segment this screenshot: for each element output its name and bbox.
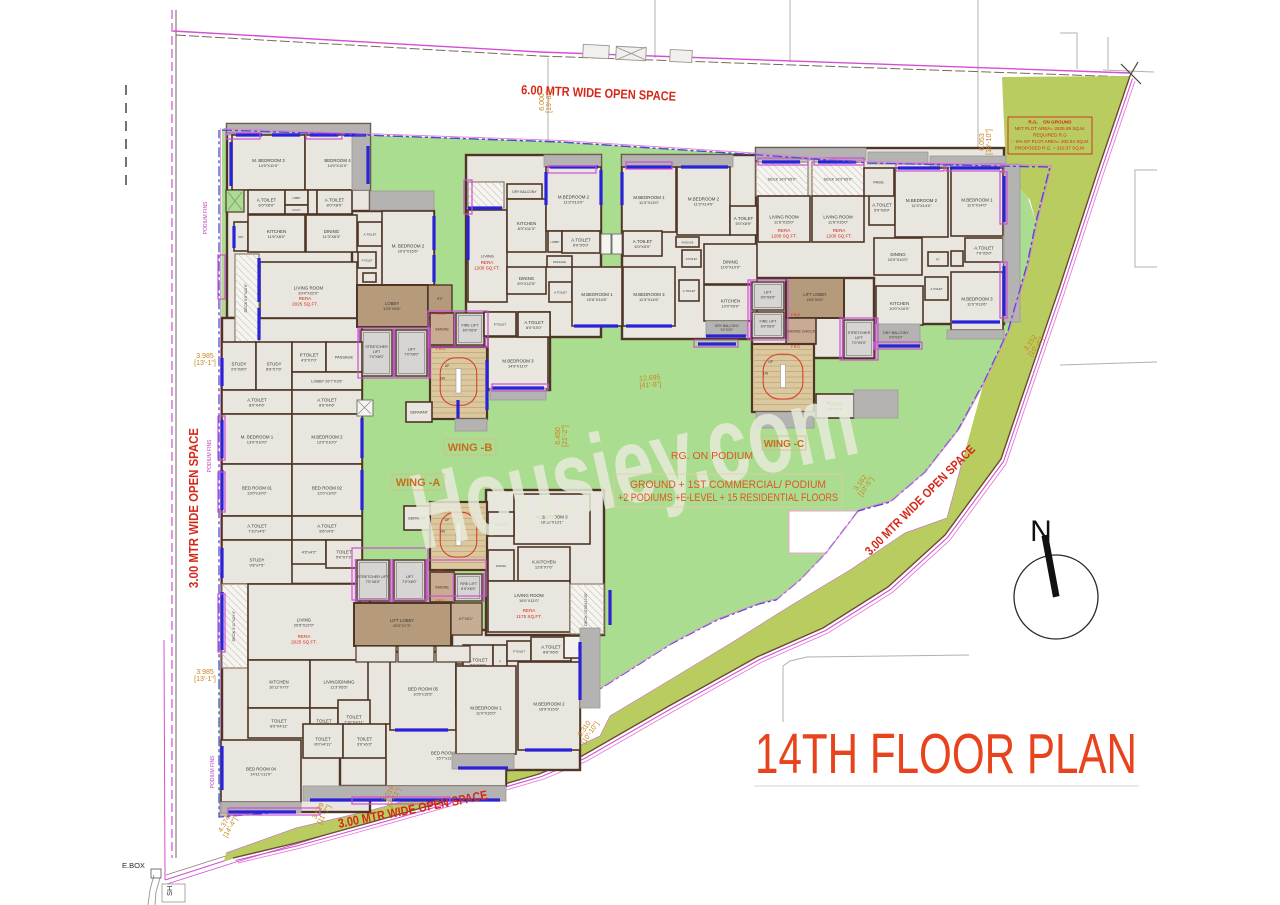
svg-text:14TH FLOOR PLAN: 14TH FLOOR PLAN: [755, 722, 1137, 786]
svg-text:14'9"X11'0": 14'9"X11'0": [508, 363, 529, 368]
svg-text:6'0"X5'0": 6'0"X5'0": [635, 244, 652, 249]
svg-text:8'6"X4'6": 8'6"X4'6": [319, 402, 336, 407]
svg-text:8'6"x4'5": 8'6"x4'5": [319, 528, 335, 533]
svg-text:DRY BALCONY: DRY BALCONY: [883, 331, 909, 335]
svg-text:WING -C: WING -C: [764, 439, 805, 450]
svg-text:DECK 10'9"X5'0": DECK 10'9"X5'0": [824, 178, 853, 182]
svg-text:5'0"X8'9": 5'0"X8'9": [736, 221, 753, 226]
svg-text:3.985: 3.985: [196, 669, 214, 676]
svg-text:8'8"X6'6": 8'8"X6'6": [543, 649, 560, 654]
svg-text:20'0"X7'3": 20'0"X7'3": [393, 623, 412, 628]
svg-text:UP: UP: [445, 364, 450, 368]
svg-text:4'3"x4'2": 4'3"x4'2": [302, 550, 317, 555]
svg-text:FIRE LIFT: FIRE LIFT: [461, 324, 479, 328]
svg-text:DN: DN: [440, 376, 445, 380]
svg-text:STRETCHER: STRETCHER: [848, 331, 871, 335]
svg-text:14'11"x11'0": 14'11"x11'0": [250, 771, 272, 776]
svg-text:LOBBY 26'7"X3'5": LOBBY 26'7"X3'5": [311, 379, 343, 384]
svg-text:8'0"X4'6": 8'0"X4'6": [249, 402, 266, 407]
svg-text:3'0"x6'3": 3'0"x6'3": [357, 741, 373, 746]
svg-text:LIVING: LIVING: [481, 254, 494, 259]
svg-text:1200 SQ.FT.: 1200 SQ.FT.: [826, 234, 852, 239]
svg-text:3.985: 3.985: [196, 353, 214, 360]
svg-text:2025 SQ.FT.: 2025 SQ.FT.: [292, 302, 318, 307]
svg-text:GROUND + 1ST COMMERCIAL/ PODIU: GROUND + 1ST COMMERCIAL/ PODIUM: [630, 479, 826, 491]
svg-text:DECK 4'11"X21'4": DECK 4'11"X21'4": [232, 610, 236, 641]
svg-text:[13'-1"]: [13'-1"]: [194, 676, 216, 683]
svg-text:PASSAGE: PASSAGE: [335, 355, 354, 360]
svg-text:RERA: RERA: [833, 228, 847, 233]
svg-text:8'0"X8'0": 8'0"X8'0": [327, 202, 344, 207]
svg-text:1200 SQ.FT.: 1200 SQ.FT.: [474, 266, 500, 271]
svg-text:7'0"X8'0": 7'0"X8'0": [369, 355, 384, 359]
svg-text:11'3"X6'5": 11'3"X6'5": [330, 684, 348, 689]
svg-text:20'5"X22'0": 20'5"X22'0": [294, 622, 315, 627]
svg-text:9'0"X3'0": 9'0"X3'0": [889, 336, 903, 340]
svg-text:UP: UP: [768, 360, 773, 364]
svg-text:7'0"X9'0": 7'0"X9'0": [852, 341, 867, 345]
svg-text:STRETCHER LIFT: STRETCHER LIFT: [357, 575, 389, 579]
svg-text:9'8"x7'5": 9'8"x7'5": [249, 562, 265, 567]
svg-text:SMOKE CHECK: SMOKE CHECK: [787, 329, 816, 334]
svg-text:P.TOILET: P.TOILET: [513, 650, 525, 654]
svg-text:8'9"X12'5": 8'9"X12'5": [517, 281, 536, 286]
svg-text:7'10"x4'5": 7'10"x4'5": [248, 528, 266, 533]
svg-text:P.T.: P.T.: [936, 259, 940, 262]
svg-text:RERA: RERA: [299, 296, 313, 301]
svg-text:P.TOILET: P.TOILET: [362, 260, 373, 263]
svg-text:LIFT: LIFT: [373, 350, 381, 354]
svg-text:14'9"X11'0": 14'9"X11'0": [258, 163, 279, 168]
svg-text:10'3"X15'6": 10'3"X15'6": [398, 248, 419, 253]
svg-text:10'0"X10'0": 10'0"X10'0": [888, 257, 909, 262]
svg-text:FIRE LIFT: FIRE LIFT: [759, 320, 777, 324]
svg-text:16'6"X6'0": 16'6"X6'0": [806, 298, 824, 302]
svg-text:12'0"X10'0": 12'0"X10'0": [317, 439, 338, 444]
svg-text:6'0"X5'0": 6'0"X5'0": [573, 242, 590, 247]
svg-text:11'3"X13'0": 11'3"X13'0": [563, 199, 584, 204]
svg-text:NET PLOT AREA= 2535.89 SQ.M.: NET PLOT AREA= 2535.89 SQ.M.: [1015, 126, 1086, 131]
svg-text:R.G. ON GROUND: R.G. ON GROUND: [1028, 120, 1072, 125]
svg-text:SH: SH: [165, 886, 174, 896]
svg-text:7'0"X8'0": 7'0"X8'0": [404, 352, 419, 356]
svg-text:FIRE LIFT: FIRE LIFT: [460, 582, 478, 586]
svg-text:RG. ON PODIUM: RG. ON PODIUM: [671, 450, 753, 462]
svg-text:REQUIRED R.G: REQUIRED R.G: [1033, 133, 1067, 138]
svg-text:10'11"X7'0": 10'11"X7'0": [269, 684, 290, 689]
svg-text:11'6"X15'0": 11'6"X15'0": [828, 219, 849, 224]
svg-text:LOBBY: LOBBY: [292, 197, 301, 200]
svg-text:11'0"X13'6": 11'0"X13'6": [967, 301, 988, 306]
svg-text:UTILITY: UTILITY: [292, 210, 301, 212]
svg-text:A.TOILET: A.TOILET: [931, 287, 943, 291]
svg-text:PROPOSED R.G. = 210.37 SQ.M.: PROPOSED R.G. = 210.37 SQ.M.: [1015, 146, 1085, 151]
svg-text:RERA: RERA: [481, 260, 495, 265]
svg-text:6'0"X8'0": 6'0"X8'0": [259, 202, 276, 207]
svg-text:F.R.D.: F.R.D.: [436, 347, 446, 351]
svg-text:10'0"X9'0": 10'0"X9'0": [721, 303, 740, 308]
svg-text:4'3"X7'0": 4'3"X7'0": [301, 357, 318, 362]
svg-text:[19'-10"]: [19'-10"]: [986, 129, 993, 155]
svg-text:3.00 MTR WIDE OPEN SPACE: 3.00 MTR WIDE OPEN SPACE: [186, 428, 201, 588]
svg-text:7'0"X8'0": 7'0"X8'0": [366, 580, 381, 584]
svg-text:7'0"X8'0": 7'0"X8'0": [402, 580, 417, 584]
svg-text:RERA: RERA: [523, 608, 537, 613]
svg-text:PODIUM FINS: PODIUM FINS: [203, 201, 209, 234]
svg-text:6.000: 6.000: [539, 93, 546, 111]
svg-text:PODIUM FINS: PODIUM FINS: [207, 439, 213, 472]
svg-text:13'0"X10'0": 13'0"X10'0": [247, 439, 268, 444]
svg-text:F.R.D.: F.R.D.: [436, 599, 446, 603]
svg-text:2'0"X8'0": 2'0"X8'0": [231, 366, 248, 371]
svg-text:PASSAGE: PASSAGE: [682, 242, 694, 245]
svg-text:DINING: DINING: [496, 564, 507, 568]
svg-text:LIFT: LIFT: [855, 336, 863, 340]
svg-text:DECK 5'0"X22'0": DECK 5'0"X22'0": [244, 283, 248, 312]
svg-text:8'0"x4'11": 8'0"x4'11": [314, 741, 332, 746]
svg-text:PODIUM FINS: PODIUM FINS: [210, 755, 216, 788]
svg-text:11'3"X14'6": 11'3"X14'6": [639, 297, 660, 302]
svg-text:2025 SQ.FT.: 2025 SQ.FT.: [291, 640, 317, 645]
svg-text:PASSAGE: PASSAGE: [553, 260, 566, 264]
svg-text:14'0"X11'0": 14'0"X11'0": [327, 163, 348, 168]
svg-text:SMOKE: SMOKE: [435, 585, 449, 590]
svg-text:[21'-2"]: [21'-2"]: [562, 425, 569, 447]
svg-text:11'3"X14'0": 11'3"X14'0": [911, 203, 932, 208]
svg-text:LOBBY: LOBBY: [551, 240, 560, 244]
svg-text:E.BOX: E.BOX: [122, 861, 145, 870]
svg-text:A.TOILET: A.TOILET: [554, 291, 567, 295]
svg-text:SERVANT: SERVANT: [410, 410, 429, 415]
svg-text:DRY: DRY: [238, 236, 244, 239]
svg-text:P.TOILET: P.TOILET: [494, 323, 507, 327]
svg-text:11'6"X15'0": 11'6"X15'0": [774, 219, 795, 224]
svg-text:[13'-1"]: [13'-1"]: [194, 360, 216, 367]
svg-text:1175 SQ.FT.: 1175 SQ.FT.: [516, 614, 541, 619]
svg-text:DECK 19'00X11'00": DECK 19'00X11'00": [584, 592, 588, 626]
svg-text:RERA: RERA: [298, 634, 312, 639]
svg-text:11'6"X8'0": 11'6"X8'0": [268, 234, 286, 239]
svg-text:DECK 10'9"X5'0": DECK 10'9"X5'0": [768, 178, 797, 182]
svg-text:6'5"X6'5": 6'5"X6'5": [461, 587, 476, 591]
svg-text:SMOKE: SMOKE: [435, 327, 449, 332]
svg-text:12'0"x10'0": 12'0"x10'0": [317, 490, 337, 495]
svg-text:20'4"X22'0": 20'4"X22'0": [298, 290, 319, 295]
svg-text:11'3"X8'3": 11'3"X8'3": [323, 234, 341, 239]
svg-text:6'0"X6'9": 6'0"X6'9": [463, 328, 478, 332]
svg-text:8'0"X4'11": 8'0"X4'11": [270, 723, 288, 728]
svg-text:WING -B: WING -B: [448, 442, 493, 454]
svg-text:N: N: [1030, 515, 1052, 548]
svg-text:5'0"X8'9": 5'0"X8'9": [874, 207, 891, 212]
svg-text:LIFT: LIFT: [764, 291, 772, 295]
svg-text:11'0"X15'0": 11'0"X15'0": [476, 710, 497, 715]
svg-text:11'3"X14'0": 11'3"X14'0": [693, 201, 714, 206]
svg-text:: - 8% OF PLOT AREA= 202.84 SQ: : - 8% OF PLOT AREA= 202.84 SQ.M.: [1011, 139, 1090, 144]
svg-text:6.450: 6.450: [555, 427, 562, 445]
svg-text:+2 PODIUMS +E-LEVEL + 15 RESID: +2 PODIUMS +E-LEVEL + 15 RESIDENTIAL FLO…: [618, 492, 838, 504]
svg-text:RERA: RERA: [778, 228, 792, 233]
svg-text:WING -A: WING -A: [396, 477, 441, 489]
svg-text:11'3"X13'0": 11'3"X13'0": [639, 200, 660, 205]
svg-text:F.R.D.: F.R.D.: [791, 313, 801, 317]
svg-text:[19'-8"]: [19'-8"]: [546, 91, 553, 113]
svg-text:16'9"X15'6": 16'9"X15'6": [539, 706, 560, 711]
svg-text:6'9"X8'0": 6'9"X8'0": [761, 324, 776, 328]
svg-text:10'5"x15'5": 10'5"x15'5": [413, 691, 433, 696]
svg-text:LIFT: LIFT: [406, 575, 414, 579]
svg-text:12'8"X7'6": 12'8"X7'6": [535, 564, 554, 569]
svg-text:6.053: 6.053: [979, 133, 986, 151]
svg-text:7'9"X5'0": 7'9"X5'0": [976, 250, 993, 255]
svg-text:6'7"X6'1": 6'7"X6'1": [459, 617, 474, 621]
svg-text:12'6"X6'6": 12'6"X6'6": [383, 306, 401, 311]
svg-text:10'0"X10'0": 10'0"X10'0": [889, 306, 910, 311]
svg-text:A.TOILET: A.TOILET: [364, 233, 377, 237]
svg-text:11'6"X10'0": 11'6"X10'0": [720, 264, 741, 269]
svg-text:LIFT LOBBY: LIFT LOBBY: [803, 292, 826, 297]
svg-text:6'0"X3'0": 6'0"X3'0": [526, 325, 543, 330]
svg-text:STRETCHER: STRETCHER: [365, 345, 388, 349]
svg-text:F.R.D.: F.R.D.: [436, 312, 446, 316]
svg-text:13'0"x10'0": 13'0"x10'0": [247, 490, 267, 495]
svg-text:10'6"X14'6": 10'6"X14'6": [587, 297, 608, 302]
svg-text:9'2": 9'2": [437, 297, 443, 301]
svg-text:A.TOILET: A.TOILET: [683, 289, 696, 293]
svg-text:19'0"X11'0": 19'0"X11'0": [519, 598, 540, 603]
svg-text:DRY BALCONY: DRY BALCONY: [512, 190, 537, 194]
svg-text:8'6"X7'6": 8'6"X7'6": [266, 366, 283, 371]
svg-text:P.TOILET: P.TOILET: [686, 257, 698, 261]
svg-text:11'0"X14'0": 11'0"X14'0": [967, 202, 988, 207]
svg-text:6'9"X8'0": 6'9"X8'0": [761, 295, 776, 299]
svg-text:5'0"X7'3": 5'0"X7'3": [336, 554, 353, 559]
svg-text:LIFT: LIFT: [408, 348, 416, 352]
svg-text:PASS.: PASS.: [873, 180, 884, 185]
svg-text:1200 SQ.FT.: 1200 SQ.FT.: [771, 234, 797, 239]
svg-text:8'3"X11'3": 8'3"X11'3": [518, 226, 536, 231]
svg-text:F.R.D.: F.R.D.: [791, 345, 801, 349]
svg-text:9'2"X3'0": 9'2"X3'0": [721, 328, 734, 332]
